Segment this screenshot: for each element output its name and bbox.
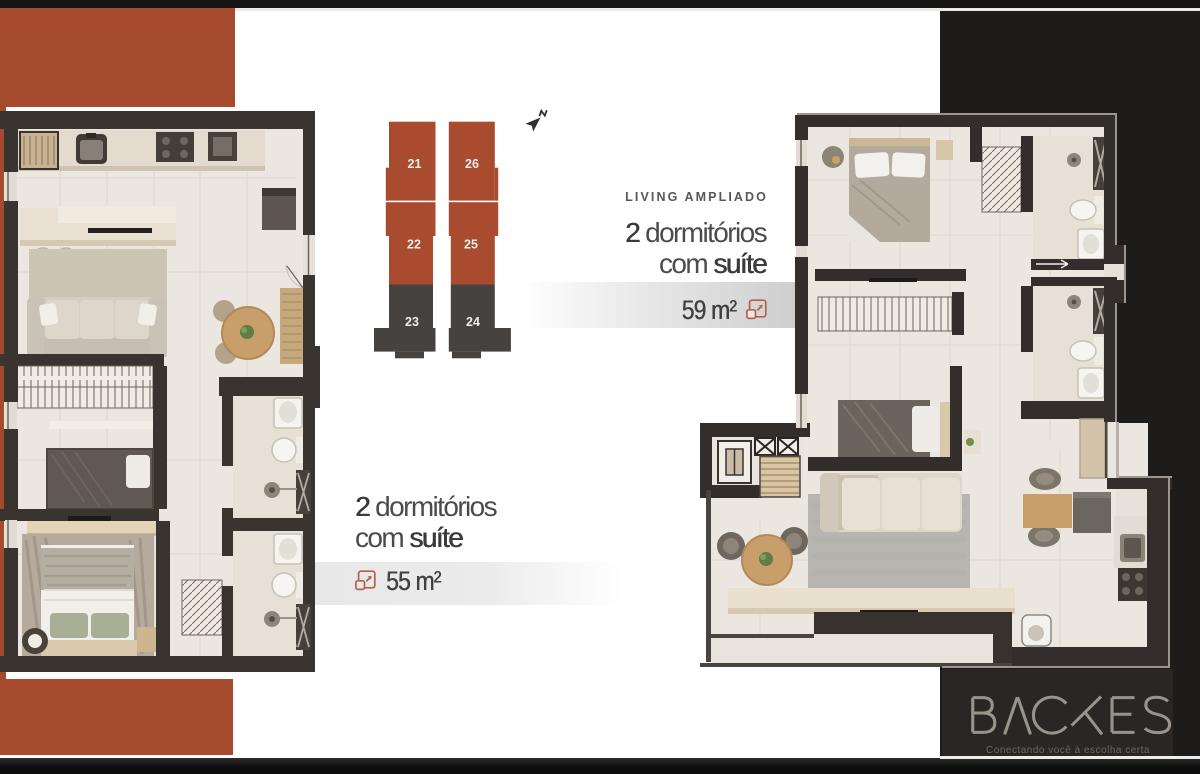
svg-text:25: 25 <box>464 238 478 252</box>
svg-text:21: 21 <box>408 157 422 171</box>
svg-text:23: 23 <box>405 315 419 329</box>
svg-text:22: 22 <box>407 238 421 252</box>
svg-text:26: 26 <box>465 157 479 171</box>
svg-text:24: 24 <box>466 315 480 329</box>
